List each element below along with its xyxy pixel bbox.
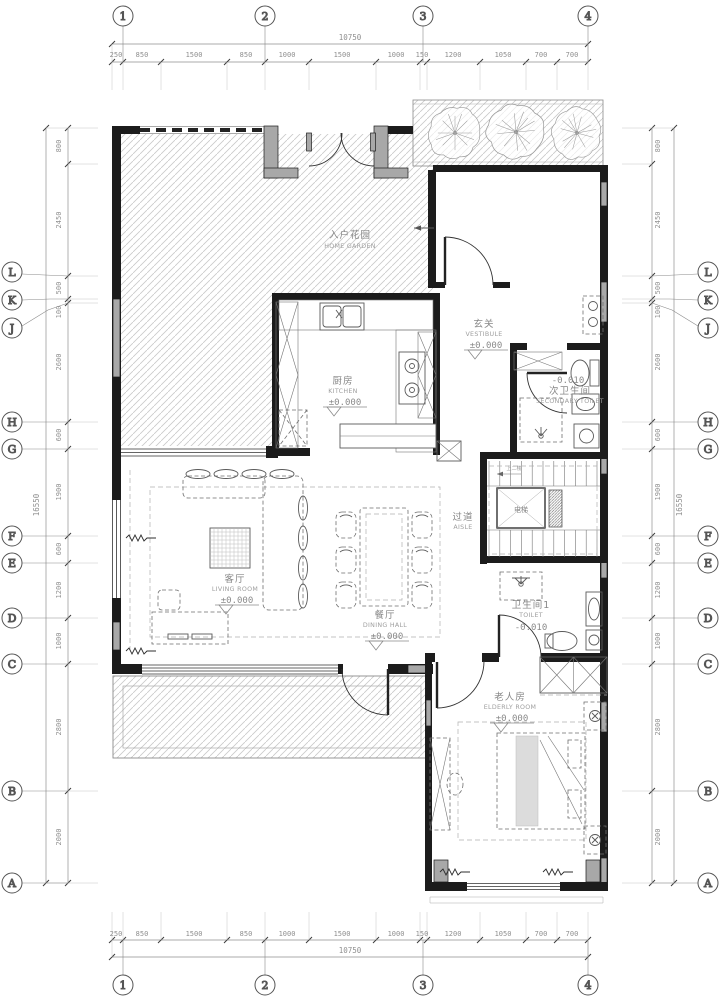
svg-text:J: J [9, 322, 14, 335]
svg-text:850: 850 [240, 930, 253, 938]
svg-text:H: H [7, 416, 17, 429]
svg-text:-0.010: -0.010 [515, 623, 548, 633]
toilet1-door [499, 615, 541, 657]
secondary-toilet-label: -0.010 次卫生间 SECONDARY TOILET [536, 376, 604, 405]
svg-text:3: 3 [420, 10, 427, 23]
svg-text:1000: 1000 [55, 633, 63, 650]
grid-bubble-row: D [698, 608, 718, 628]
gas-stove [399, 352, 425, 404]
svg-text:1: 1 [120, 979, 127, 992]
grid-bubble-row: E [698, 553, 718, 573]
grid-bubble-row: G [2, 439, 22, 459]
grid-bubble-col: 2 [255, 975, 275, 995]
living-south-window [142, 664, 338, 674]
dining-hall-label: 餐厅 DINING HALL ±0.000 [363, 609, 409, 650]
living-room-label: 客厅 LIVING ROOM ±0.000 [212, 573, 259, 614]
corridor-drain-box [437, 441, 461, 461]
shower-area [500, 572, 542, 600]
aisle-label: 过道 AISLE [452, 511, 473, 531]
grid-bubble-row: C [2, 654, 22, 674]
grid-bubble-row: D [2, 608, 22, 628]
dims-left: 800 2450 500 100 2600 600 1900 600 1200 … [32, 125, 98, 886]
balcony-sill [430, 897, 603, 903]
svg-text:150: 150 [416, 930, 429, 938]
svg-text:卫生间1: 卫生间1 [512, 599, 551, 611]
washing-machine [586, 630, 602, 650]
grid-bubble-row: F [698, 526, 718, 546]
svg-text:500: 500 [55, 282, 63, 295]
svg-text:厨房: 厨房 [332, 375, 353, 387]
svg-text:700: 700 [566, 51, 579, 59]
grid-bubble-row: H [2, 412, 22, 432]
grid-bubble-col: 4 [578, 6, 598, 26]
svg-text:L: L [8, 266, 16, 279]
svg-text:餐厅: 餐厅 [374, 609, 395, 621]
svg-text:2600: 2600 [55, 354, 63, 371]
wardrobe [540, 657, 607, 695]
svg-text:K: K [8, 294, 17, 307]
grid-bubble-row: A [2, 873, 22, 893]
svg-text:4: 4 [585, 979, 592, 992]
svg-text:2000: 2000 [654, 829, 662, 846]
svg-text:250: 250 [110, 930, 123, 938]
svg-text:过道: 过道 [452, 511, 473, 523]
coffee-table-rug [210, 528, 250, 568]
overall-dim: 16550 [32, 493, 41, 516]
svg-text:1200: 1200 [445, 51, 462, 59]
kitchen-label: 厨房 KITCHEN ±0.000 [323, 375, 367, 416]
svg-text:700: 700 [535, 51, 548, 59]
svg-text:客厅: 客厅 [224, 573, 245, 585]
home-garden-hatch-left [121, 295, 272, 455]
svg-text:1000: 1000 [279, 51, 296, 59]
svg-text:L: L [704, 266, 712, 279]
vestibule-fixtures [414, 225, 603, 334]
svg-text:1: 1 [120, 10, 127, 23]
svg-text:1000: 1000 [388, 51, 405, 59]
dining-table [360, 508, 408, 606]
svg-text:1050: 1050 [495, 51, 512, 59]
home-garden-label: 入户花园 HOME GARDEN [324, 229, 376, 250]
svg-text:DINING HALL: DINING HALL [363, 622, 407, 629]
svg-text:K: K [704, 294, 713, 307]
svg-text:700: 700 [535, 930, 548, 938]
grid-bubble-row: K [2, 290, 22, 310]
stair-handrail [549, 490, 562, 527]
grid-bubble-row: G [698, 439, 718, 459]
svg-text:2450: 2450 [654, 212, 662, 229]
svg-text:A: A [7, 877, 17, 890]
grid-bubble-row: L [698, 262, 718, 282]
svg-text:HOME GARDEN: HOME GARDEN [324, 243, 376, 250]
svg-text:A: A [703, 877, 713, 890]
svg-text:1200: 1200 [55, 582, 63, 599]
kitchen-fixtures [276, 300, 436, 452]
grid-bubble-row: L [2, 262, 22, 282]
svg-text:600: 600 [55, 429, 63, 442]
svg-text:850: 850 [136, 930, 149, 938]
grid-bubble-row: B [2, 781, 22, 801]
svg-text:1500: 1500 [186, 930, 203, 938]
svg-text:入户花园: 入户花园 [329, 229, 371, 241]
dining-furniture [336, 508, 432, 608]
svg-text:3: 3 [420, 979, 427, 992]
svg-text:±0.000: ±0.000 [329, 398, 362, 408]
svg-text:LIVING ROOM: LIVING ROOM [212, 586, 258, 593]
grid-bubble-row: C [698, 654, 718, 674]
svg-text:2: 2 [262, 10, 269, 23]
svg-text:G: G [704, 443, 713, 456]
svg-text:E: E [8, 557, 16, 570]
svg-text:850: 850 [136, 51, 149, 59]
windows-layer [111, 446, 560, 891]
svg-text:KITCHEN: KITCHEN [328, 388, 357, 395]
svg-text:F: F [704, 530, 712, 543]
svg-text:1500: 1500 [186, 51, 203, 59]
svg-text:1200: 1200 [654, 582, 662, 599]
grid-bubble-row: J [698, 318, 718, 338]
elderly-room-furniture [430, 657, 607, 854]
grid-bubble-col: 1 [113, 6, 133, 26]
grid-bubble-col: 3 [413, 6, 433, 26]
dining-chairs [336, 512, 432, 608]
svg-text:D: D [8, 612, 17, 625]
svg-text:1500: 1500 [334, 51, 351, 59]
svg-text:1000: 1000 [388, 930, 405, 938]
kitchen-sink [320, 303, 364, 330]
svg-text:VESTIBULE: VESTIBULE [465, 331, 502, 338]
bed [497, 733, 585, 829]
stair-note: 上二楼 [506, 465, 521, 472]
overall-dim: 10750 [339, 946, 362, 955]
svg-text:ELDERLY ROOM: ELDERLY ROOM [484, 704, 537, 711]
grid-bubble-row: F [2, 526, 22, 546]
svg-text:1900: 1900 [55, 484, 63, 501]
washbasin [586, 592, 602, 626]
grid-bubble-col: 2 [255, 6, 275, 26]
svg-text:次卫生间: 次卫生间 [549, 385, 591, 397]
svg-text:1000: 1000 [279, 930, 296, 938]
svg-text:E: E [704, 557, 712, 570]
svg-text:600: 600 [55, 543, 63, 556]
svg-text:2600: 2600 [654, 354, 662, 371]
kitchen-island [340, 424, 436, 448]
svg-text:F: F [8, 530, 16, 543]
svg-text:600: 600 [654, 543, 662, 556]
overall-dim: 10750 [339, 33, 362, 42]
svg-text:100: 100 [654, 306, 662, 319]
svg-text:500: 500 [654, 282, 662, 295]
elderly-room-label: 老人房 ELDERLY ROOM ±0.000 [484, 691, 537, 732]
svg-text:850: 850 [240, 51, 253, 59]
floorplan-svg: 电梯 上二楼 [0, 0, 720, 1001]
svg-text:C: C [704, 658, 712, 671]
svg-text:H: H [703, 416, 713, 429]
svg-text:SECONDARY TOILET: SECONDARY TOILET [536, 398, 604, 405]
svg-text:250: 250 [110, 51, 123, 59]
overall-dim: 16550 [675, 493, 684, 516]
garden-vestibule-door [445, 237, 493, 285]
svg-text:2000: 2000 [55, 829, 63, 846]
vestibule-label: 玄关 VESTIBULE ±0.000 [464, 318, 508, 359]
dresser-desk [430, 738, 463, 830]
dims-top: 10750 250 850 1500 850 1000 1500 1000 15… [109, 33, 591, 90]
elevator-label: 电梯 [514, 505, 528, 514]
dims-right: 800 2450 500 100 2600 600 1900 600 1200 … [622, 125, 684, 886]
grid-bubble-row: E [2, 553, 22, 573]
svg-text:C: C [8, 658, 16, 671]
grid-bubble-col: 3 [413, 975, 433, 995]
svg-text:1200: 1200 [445, 930, 462, 938]
svg-text:TOILET: TOILET [518, 612, 543, 619]
grid-bubble-col: 4 [578, 975, 598, 995]
elderly-room-door [437, 661, 484, 708]
svg-text:800: 800 [55, 140, 63, 153]
ceiling-rug-boundary [150, 487, 440, 637]
svg-text:AISLE: AISLE [453, 524, 472, 531]
fridge [279, 410, 307, 446]
svg-text:4: 4 [585, 10, 592, 23]
toilet1-label: 卫生间1 TOILET -0.010 [512, 599, 551, 633]
grid-bubble-row: B [698, 781, 718, 801]
svg-text:2: 2 [262, 979, 269, 992]
svg-text:B: B [8, 785, 16, 798]
terrace-hatch [113, 676, 431, 758]
svg-text:老人房: 老人房 [494, 691, 526, 703]
svg-text:2450: 2450 [55, 212, 63, 229]
svg-text:J: J [705, 322, 710, 335]
washing-machine [574, 424, 599, 448]
tv-cabinet [152, 590, 228, 644]
svg-text:玄关: 玄关 [473, 318, 494, 330]
grid-bubble-col: 1 [113, 975, 133, 995]
svg-text:150: 150 [416, 51, 429, 59]
toilet-fixture [545, 632, 577, 651]
floorplan-canvas: 电梯 上二楼 [0, 0, 720, 1001]
svg-text:±0.000: ±0.000 [371, 632, 404, 642]
grid-bubble-row: H [698, 412, 718, 432]
toilet1-fixtures [500, 572, 602, 651]
dims-bottom: 250 850 1500 850 1000 1500 1000 150 1200… [109, 912, 591, 960]
svg-text:600: 600 [654, 429, 662, 442]
svg-text:±0.000: ±0.000 [221, 596, 254, 606]
svg-text:-0.010: -0.010 [552, 376, 585, 386]
svg-text:D: D [704, 612, 713, 625]
svg-text:1000: 1000 [654, 633, 662, 650]
grid-bubble-row: K [698, 290, 718, 310]
elevator-box: 电梯 [497, 488, 545, 528]
svg-text:B: B [704, 785, 712, 798]
svg-text:±0.000: ±0.000 [470, 341, 503, 351]
svg-text:1500: 1500 [334, 930, 351, 938]
svg-text:G: G [8, 443, 17, 456]
svg-text:1050: 1050 [495, 930, 512, 938]
svg-text:2800: 2800 [55, 719, 63, 736]
svg-text:2800: 2800 [654, 719, 662, 736]
grid-bubble-row: A [698, 873, 718, 893]
svg-text:1900: 1900 [654, 484, 662, 501]
svg-text:100: 100 [55, 306, 63, 319]
svg-text:±0.000: ±0.000 [496, 714, 529, 724]
svg-text:800: 800 [654, 140, 662, 153]
grid-bubble-row: J [2, 318, 22, 338]
svg-text:700: 700 [566, 930, 579, 938]
